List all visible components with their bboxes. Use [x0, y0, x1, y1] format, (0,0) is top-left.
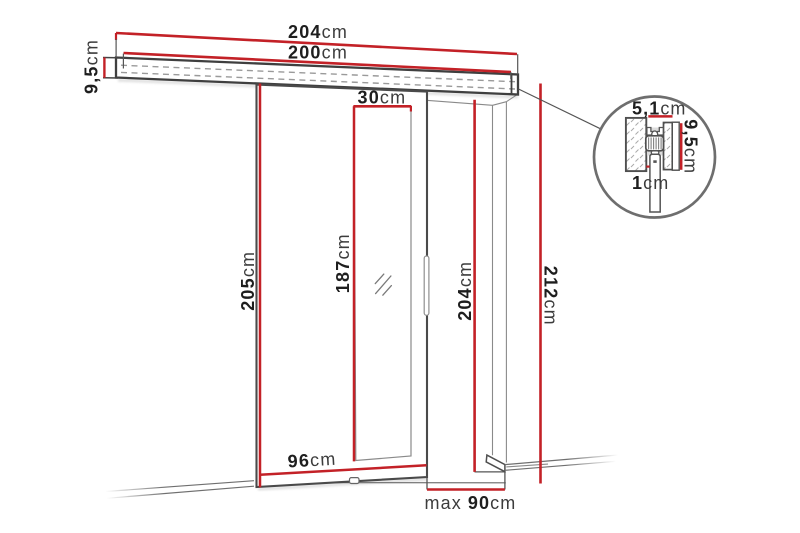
- svg-text:9,5cm: 9,5cm: [681, 119, 701, 174]
- svg-text:187cm: 187cm: [333, 233, 353, 293]
- svg-text:30cm: 30cm: [358, 87, 407, 107]
- svg-text:9,5cm: 9,5cm: [81, 39, 101, 94]
- svg-text:max 90cm: max 90cm: [425, 493, 517, 513]
- svg-text:204cm: 204cm: [288, 22, 348, 42]
- svg-text:5,1cm: 5,1cm: [632, 99, 687, 119]
- svg-text:200cm: 200cm: [288, 42, 348, 62]
- svg-text:204cm: 204cm: [455, 261, 475, 321]
- svg-text:96cm: 96cm: [287, 449, 337, 472]
- svg-text:212cm: 212cm: [541, 266, 561, 326]
- svg-text:1cm: 1cm: [632, 173, 669, 193]
- svg-text:205cm: 205cm: [238, 251, 258, 311]
